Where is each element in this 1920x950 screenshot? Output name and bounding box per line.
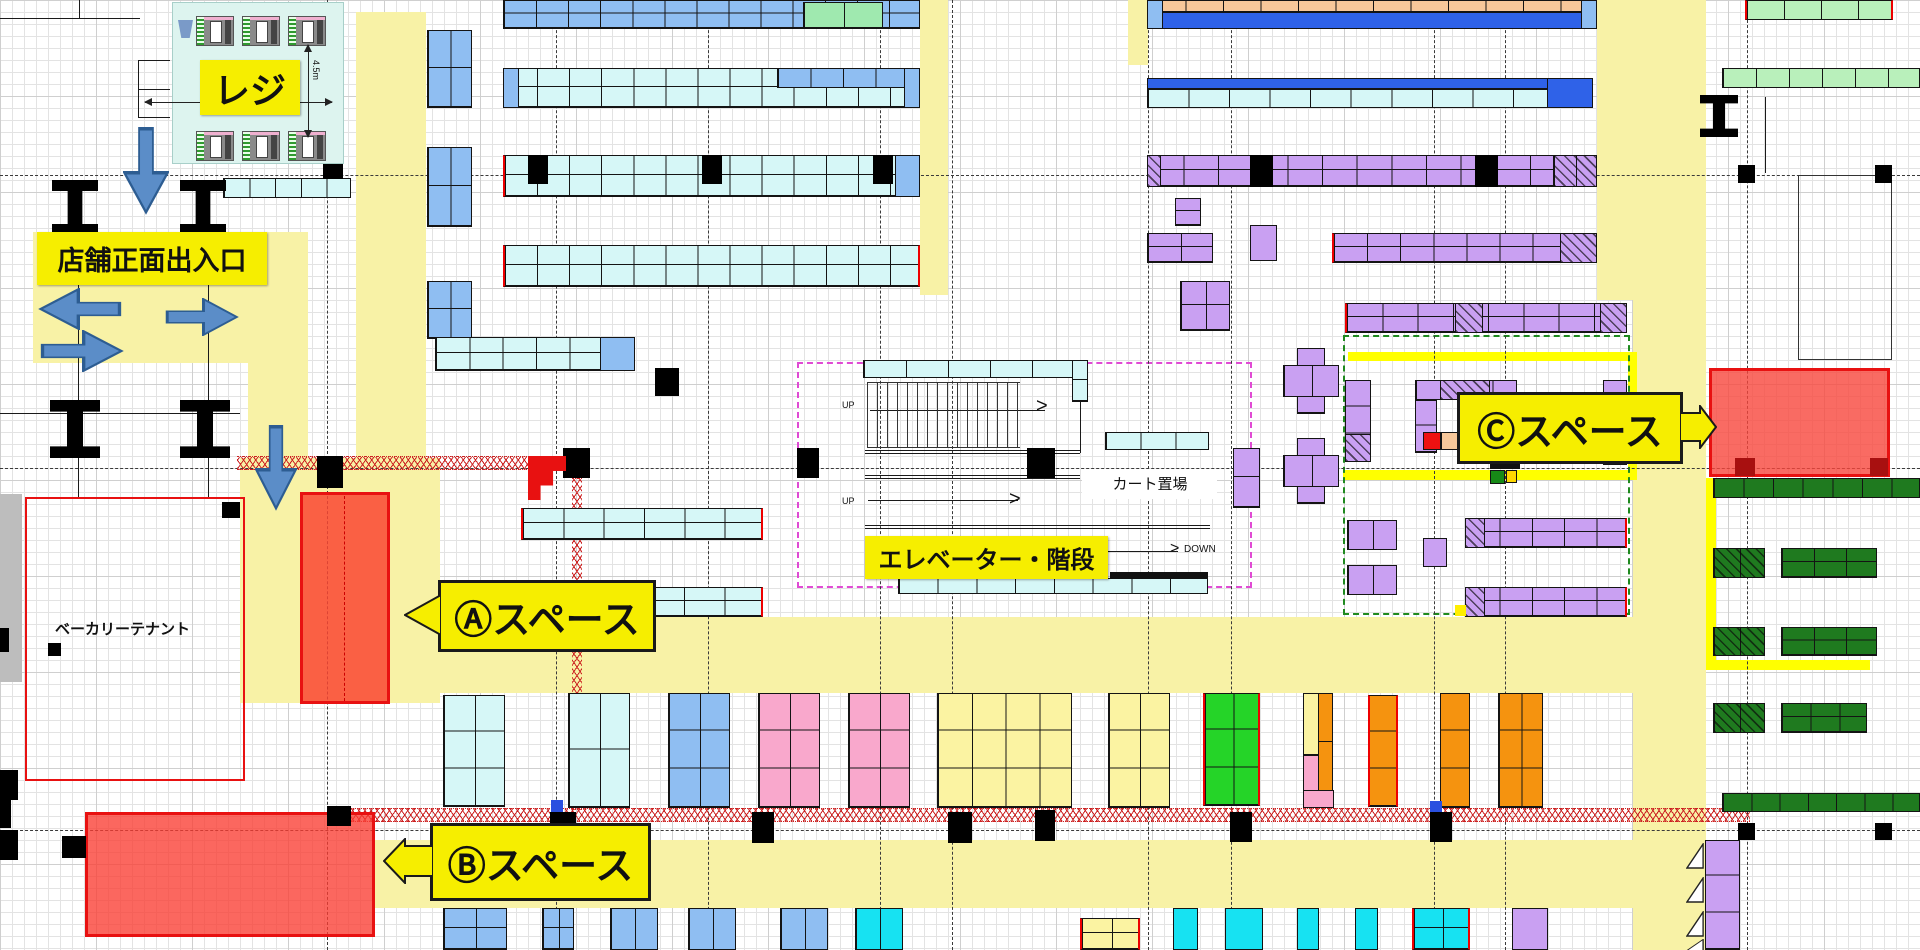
column-square xyxy=(1475,155,1498,187)
column-square xyxy=(1738,823,1755,840)
space-a-center-dash xyxy=(344,496,345,701)
gondola-mixed-yellow xyxy=(1303,693,1319,755)
stair-landing-line xyxy=(865,478,1080,479)
flow-arrow-left xyxy=(38,288,122,330)
column-square xyxy=(1027,448,1055,478)
door-swing-icon xyxy=(1686,938,1704,950)
column-square xyxy=(948,812,972,843)
label-elevator-stairs-text: エレベーター・階段 xyxy=(879,540,1095,575)
arrow-tail-left-icon xyxy=(383,838,433,884)
register-icon xyxy=(242,16,280,46)
stair-landing-line xyxy=(865,525,1210,526)
green-row-right xyxy=(1713,478,1920,498)
shelf-row-4 xyxy=(503,245,920,287)
shelf-c-b3-hatch xyxy=(1465,518,1485,548)
elevator-black-bar xyxy=(1110,572,1208,579)
flow-arrow-right xyxy=(40,330,124,372)
door-swing-icon xyxy=(1686,911,1704,937)
shelf-purple-row1-hatch xyxy=(1553,155,1597,187)
down-arrow-line xyxy=(1108,551,1178,552)
outline-room xyxy=(1798,175,1892,360)
chevron-right-icon: > xyxy=(1009,489,1021,509)
label-register: レジ xyxy=(200,60,300,115)
green-block xyxy=(1713,627,1765,656)
bottom-shelf-blue xyxy=(542,908,574,950)
walkway-gap-2 xyxy=(1128,0,1148,65)
gondola-orange xyxy=(1498,693,1543,808)
column-ibeam xyxy=(52,180,98,235)
label-space-b-text: Ⓑスペース xyxy=(448,835,633,890)
shelf-purple-block xyxy=(1180,281,1230,331)
shelf-purple-small xyxy=(1175,198,1201,226)
label-elevator-stairs: エレベーター・階段 xyxy=(865,536,1108,579)
column-square xyxy=(752,812,774,843)
grid-dash-h1 xyxy=(0,175,1920,176)
shelf-purple-row2c-hatch xyxy=(1560,233,1597,263)
cart-storage-text: カート置場 xyxy=(1085,477,1215,492)
arrow-tail-right-icon xyxy=(1680,405,1717,449)
gondola-yellow-wide xyxy=(937,693,1072,808)
column-square xyxy=(797,448,819,478)
bottom-shelf-cyan xyxy=(855,908,903,950)
flow-arrow-down xyxy=(123,127,169,215)
wall-line xyxy=(79,0,80,18)
dark-red-block xyxy=(1870,458,1888,476)
c-red-marker xyxy=(1423,432,1441,450)
column-square xyxy=(327,806,351,826)
column-square xyxy=(1430,812,1452,842)
shelf-block-blue xyxy=(427,147,472,227)
chevron-right-icon: > xyxy=(1036,396,1048,416)
gondola-blue xyxy=(668,693,730,808)
shelf-ne-row2-cyan xyxy=(1147,89,1593,108)
column-square xyxy=(873,155,893,184)
column-square xyxy=(62,836,86,858)
light-green-row xyxy=(1722,68,1920,88)
edge-block xyxy=(0,628,9,652)
column-square xyxy=(1230,812,1252,842)
column-ibeam xyxy=(50,400,100,458)
edge-block xyxy=(0,800,11,828)
shelf-block-blue xyxy=(427,30,472,108)
door-swing-icon xyxy=(1686,877,1704,903)
shelf-mid-row-a xyxy=(521,508,763,540)
green-row-bottom xyxy=(1722,793,1920,812)
shelf-purple-vert xyxy=(1233,448,1260,508)
flow-arrow-right xyxy=(165,298,239,336)
shelf-purple-row2c xyxy=(1332,233,1597,263)
green-block xyxy=(1781,627,1877,656)
label-register-text: レジ xyxy=(214,62,286,114)
gondola-mixed-orange xyxy=(1318,693,1333,793)
bakery-tenant-area xyxy=(25,497,245,781)
shelf-ne-row2-blue xyxy=(1147,78,1593,89)
gondola-cyan xyxy=(443,695,505,807)
bottom-shelf-cyan xyxy=(1225,908,1263,950)
shelf-purple-row1-hatch xyxy=(1147,155,1161,187)
bottom-shelf-purple-tall xyxy=(1705,840,1740,950)
shelf-ne-row1-cap xyxy=(1581,0,1597,29)
shelf-row-2-cap xyxy=(904,68,920,108)
shelf-stair-top xyxy=(863,360,1073,378)
edge-block xyxy=(0,830,18,860)
gondola-cyan xyxy=(568,693,630,808)
shelf-c-b1 xyxy=(1347,520,1397,550)
shelf-row-2-blue xyxy=(777,68,907,88)
shelf-elevator-row xyxy=(898,578,1208,594)
label-space-a: Ⓐスペース xyxy=(438,580,656,652)
gondola-mixed-pink xyxy=(1303,790,1334,808)
column-ibeam xyxy=(180,180,226,235)
label-entrance: 店舗正面出入口 xyxy=(37,232,267,285)
wall-line xyxy=(0,18,140,19)
wall-line xyxy=(138,60,170,61)
column-square xyxy=(563,448,590,478)
column-square xyxy=(1875,823,1892,840)
label-space-c-text: Ⓒスペース xyxy=(1477,401,1662,456)
shelf-block-blue xyxy=(427,281,472,339)
blue-cap xyxy=(551,800,563,812)
bottom-shelf-yellow xyxy=(1080,918,1140,950)
dark-red-block xyxy=(1735,458,1755,476)
shelf-row-top-green xyxy=(803,2,883,28)
green-block xyxy=(1781,703,1867,733)
door-swing-icon xyxy=(1686,843,1704,869)
gray-strip xyxy=(0,494,22,682)
shelf-purple-plus xyxy=(1283,455,1339,487)
stair-arrow-line xyxy=(868,500,1018,501)
bottom-shelf-cyan xyxy=(1412,908,1470,950)
stairs-up-text: UP xyxy=(842,497,855,506)
edge-block xyxy=(0,770,18,800)
shelf-purple-row2a xyxy=(1147,233,1213,263)
stairs-down-text: DOWN xyxy=(1184,545,1216,555)
bottom-shelf-purple xyxy=(1512,908,1548,950)
wall-line xyxy=(138,89,170,90)
shelf-purple-plus xyxy=(1283,365,1339,397)
column-square xyxy=(1738,165,1755,183)
shelf-purple-row2b xyxy=(1250,225,1277,261)
bottom-shelf-cyan xyxy=(1297,908,1319,950)
green-block xyxy=(1781,548,1877,578)
c-yellow-marker xyxy=(1455,605,1466,616)
green-block xyxy=(1713,703,1765,733)
c-yellow-marker2 xyxy=(1506,470,1517,483)
walkway-gap-1 xyxy=(920,0,948,295)
wall-line xyxy=(1765,97,1766,173)
bottom-shelf-cyan xyxy=(1173,908,1198,950)
column-square xyxy=(1875,165,1892,183)
shelf-purple-row3-hatch xyxy=(1600,303,1627,333)
register-icon xyxy=(196,131,234,161)
shelf-row-small xyxy=(223,178,351,198)
shelf-c-b5 xyxy=(1465,587,1627,617)
column-square xyxy=(1250,155,1273,187)
gondola-orange xyxy=(1368,695,1398,807)
bottom-shelf-blue xyxy=(443,908,507,950)
label-space-a-text: Ⓐスペース xyxy=(454,589,639,644)
shelf-ne-row1-blue xyxy=(1147,12,1597,29)
gondola-orange xyxy=(1440,693,1470,808)
label-entrance-text: 店舗正面出入口 xyxy=(58,239,247,278)
light-green-row xyxy=(1745,0,1893,20)
highlight-right-horizontal xyxy=(1706,660,1870,670)
column-square xyxy=(48,643,61,656)
flow-arrow-down xyxy=(255,425,297,511)
chevron-right-icon: > xyxy=(1170,541,1179,557)
arrow-tail-left-icon xyxy=(404,593,441,637)
store-floor-plan: >>> レジ 店舗正面出入口 エレベーター・階段 Ⓐスペース Ⓑスペース Ⓒスペ… xyxy=(0,0,1920,950)
green-block xyxy=(1713,548,1765,578)
shelf-purple-row3-hatch xyxy=(1455,303,1483,333)
shelf-ne-row2-end xyxy=(1547,78,1593,108)
stair-treads xyxy=(867,382,1020,448)
shelf-c-b5-hatch xyxy=(1465,587,1485,617)
walkway-right-top xyxy=(1597,0,1706,300)
wall-line xyxy=(208,252,209,497)
gondola-pink xyxy=(848,693,910,808)
gondola-pink xyxy=(758,693,820,808)
column-square xyxy=(323,164,343,179)
shelf-c-b4 xyxy=(1347,565,1397,595)
space-a-red-area xyxy=(300,492,390,704)
shelf-c-left-hatch xyxy=(1345,434,1371,462)
gondola-green xyxy=(1203,693,1260,806)
shelf-c-b2 xyxy=(1423,538,1447,567)
wall-line xyxy=(138,117,170,118)
c-green-marker xyxy=(1490,470,1505,484)
shelf-ne-row1-peach xyxy=(1147,0,1597,12)
shelf-row-2-cap xyxy=(503,68,519,108)
bottom-shelf-blue xyxy=(688,908,736,950)
gondola-yellow xyxy=(1108,693,1170,808)
shelf-row-5-blue xyxy=(600,337,635,371)
column-square xyxy=(1035,810,1055,841)
bottom-shelf-blue xyxy=(610,908,658,950)
register-icon xyxy=(196,16,234,46)
label-space-b: Ⓑスペース xyxy=(430,823,651,901)
shelf-ne-row1-cap xyxy=(1147,0,1163,29)
shelf-purple-row3 xyxy=(1345,303,1627,333)
column-square xyxy=(222,502,240,518)
column-square xyxy=(655,368,679,396)
shelf-row-3-cap xyxy=(895,155,920,197)
space-b-red-area xyxy=(85,812,375,937)
label-space-c: Ⓒスペース xyxy=(1457,392,1683,464)
register-icon xyxy=(288,16,326,46)
bottom-shelf-cyan xyxy=(1355,908,1378,950)
stair-landing-line xyxy=(865,528,1210,529)
shelf-stair-side xyxy=(1072,360,1088,402)
shelf-c-b3 xyxy=(1465,518,1627,548)
column-square xyxy=(528,155,548,184)
column-square xyxy=(702,155,722,184)
bottom-shelf-blue xyxy=(780,908,828,950)
shelf-cart-row xyxy=(1105,432,1209,450)
bakery-tenant-text: ベーカリーテナント xyxy=(55,622,190,637)
dimension-text: 4.5m xyxy=(311,60,320,80)
stairs-up-text: UP xyxy=(842,401,855,410)
register-icon xyxy=(242,131,280,161)
gondola-mixed-pink xyxy=(1303,755,1319,791)
column-ibeam xyxy=(180,400,230,458)
red-steps xyxy=(528,456,566,500)
shelf-purple-row1 xyxy=(1147,155,1597,187)
walkway-top-vertical xyxy=(356,12,426,458)
column-square xyxy=(317,456,343,488)
